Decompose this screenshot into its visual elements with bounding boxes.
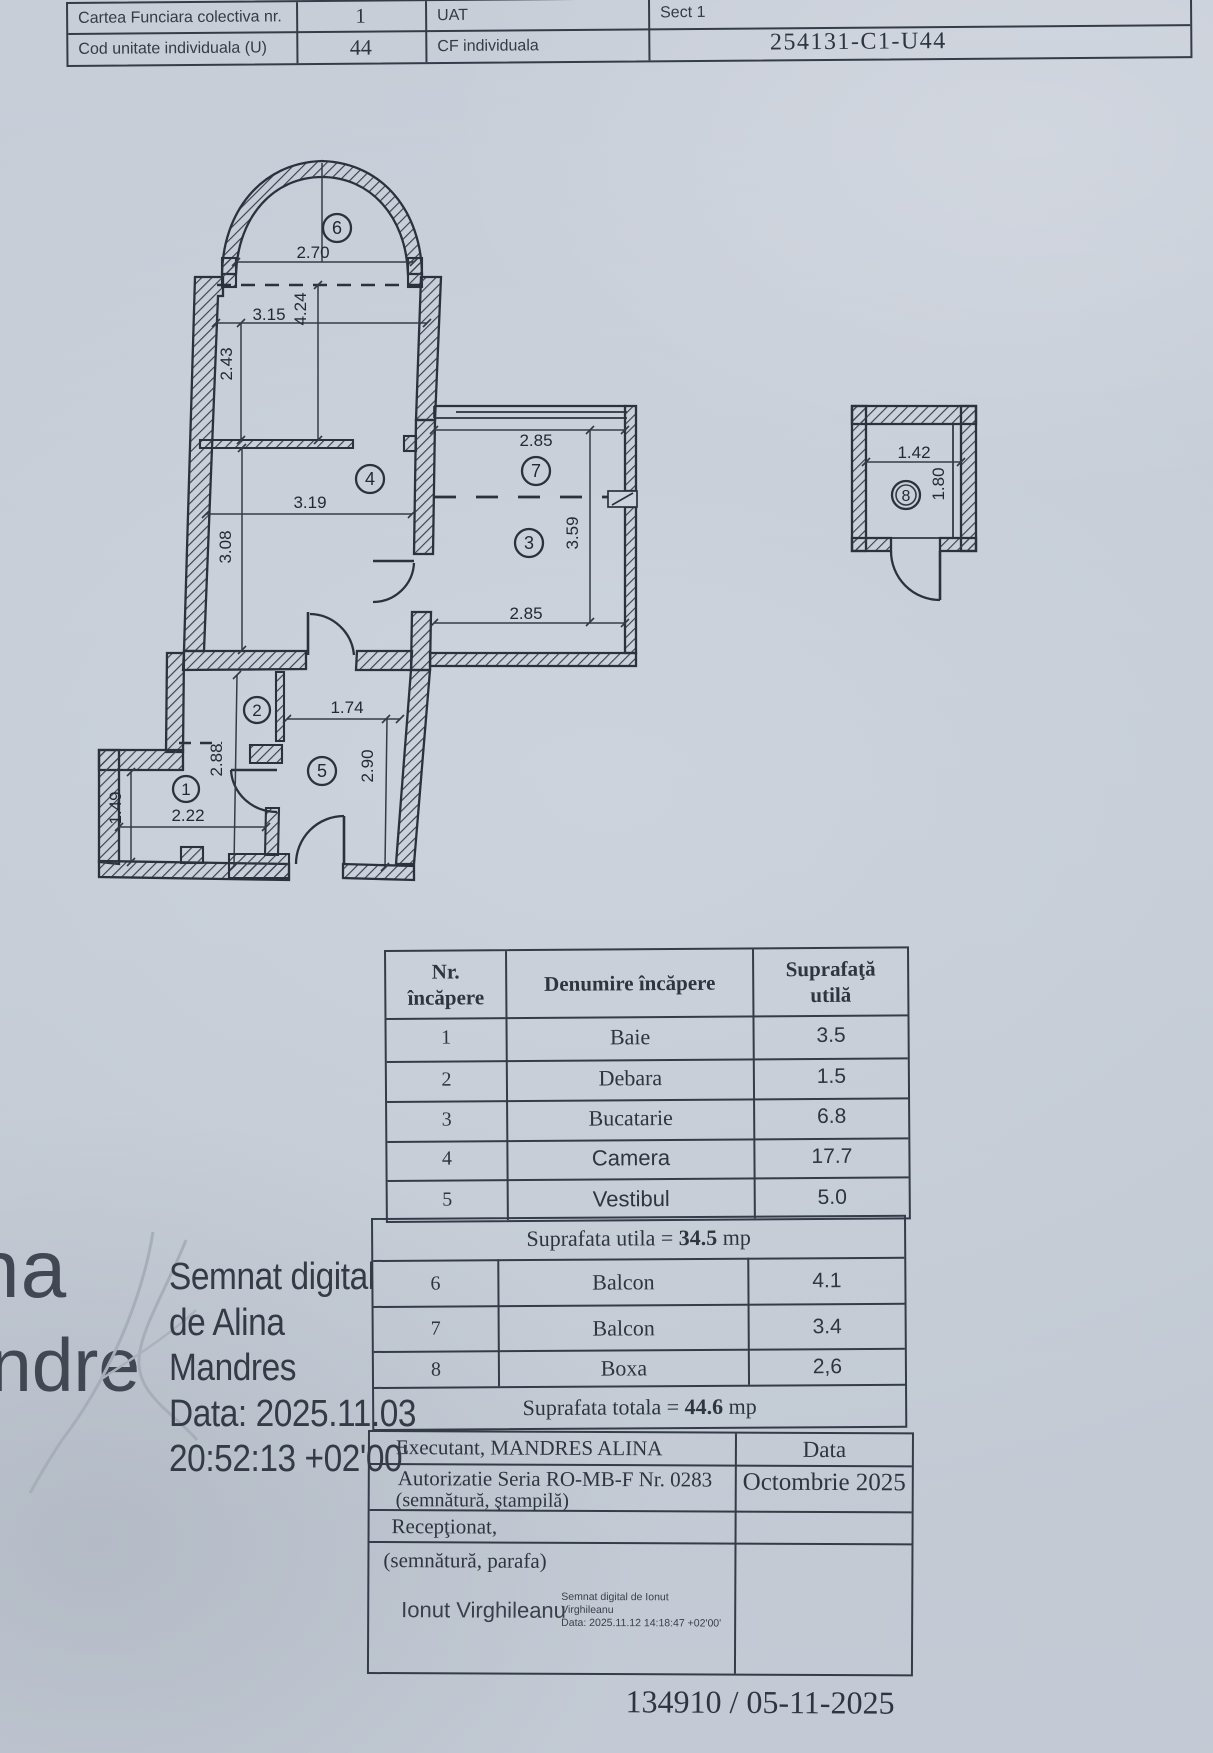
svg-text:2.90: 2.90: [358, 749, 377, 782]
svg-text:8: 8: [902, 488, 911, 505]
svg-text:1: 1: [181, 780, 190, 799]
svg-text:3.15: 3.15: [252, 305, 285, 324]
svg-text:4.24: 4.24: [291, 292, 310, 325]
svg-text:2: 2: [252, 701, 261, 720]
svg-text:1.74: 1.74: [330, 698, 363, 717]
svg-text:3.59: 3.59: [563, 516, 582, 549]
svg-text:2.70: 2.70: [296, 243, 329, 262]
svg-text:1.42: 1.42: [897, 443, 930, 462]
svg-text:2.85: 2.85: [519, 431, 552, 450]
svg-text:3.19: 3.19: [293, 493, 326, 512]
svg-text:4: 4: [365, 469, 375, 489]
svg-text:7: 7: [531, 461, 541, 481]
svg-text:2.22: 2.22: [171, 806, 204, 825]
svg-text:1.80: 1.80: [929, 467, 948, 500]
svg-text:6: 6: [332, 218, 342, 238]
svg-text:2.43: 2.43: [217, 347, 236, 380]
svg-text:2.85: 2.85: [509, 604, 542, 623]
svg-text:5: 5: [317, 761, 327, 781]
svg-text:1.49: 1.49: [106, 791, 125, 824]
svg-text:3.08: 3.08: [216, 530, 235, 563]
svg-text:3: 3: [524, 533, 534, 553]
svg-text:2.88: 2.88: [207, 743, 226, 776]
